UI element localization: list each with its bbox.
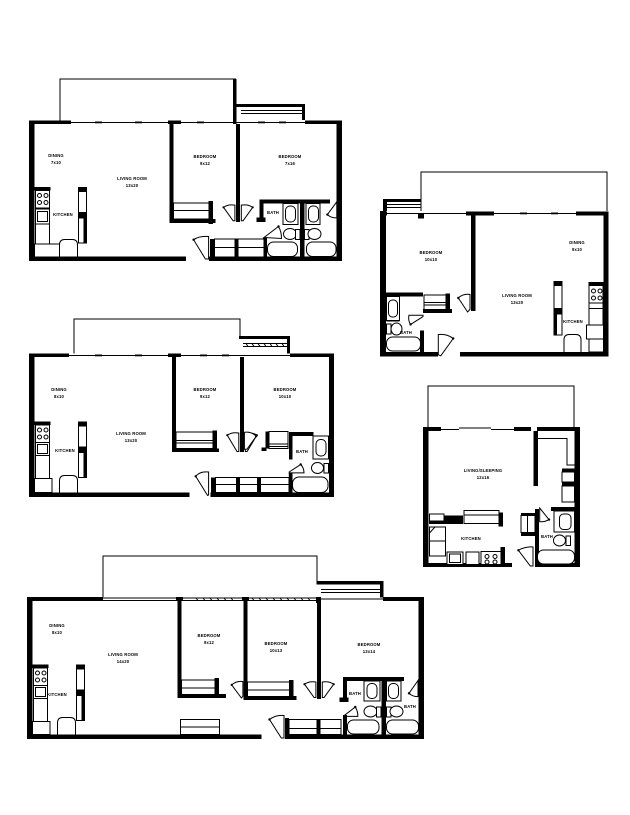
svg-text:9x12: 9x12 — [200, 161, 210, 166]
svg-text:13x20: 13x20 — [126, 183, 139, 188]
svg-text:BATH: BATH — [349, 691, 361, 696]
svg-text:KITCHEN: KITCHEN — [47, 692, 67, 697]
svg-text:LIVING ROOM: LIVING ROOM — [502, 293, 532, 298]
svg-text:BEDROOM: BEDROOM — [194, 387, 217, 392]
svg-text:BEDROOM: BEDROOM — [279, 154, 302, 159]
svg-text:8x10: 8x10 — [52, 630, 62, 635]
svg-text:13x20: 13x20 — [125, 438, 138, 443]
svg-text:BEDROOM: BEDROOM — [198, 633, 221, 638]
svg-text:KITCHEN: KITCHEN — [461, 536, 481, 541]
svg-text:LIVING ROOM: LIVING ROOM — [116, 431, 146, 436]
svg-text:7x10: 7x10 — [51, 160, 61, 165]
svg-text:KITCHEN: KITCHEN — [563, 319, 583, 324]
svg-text:BEDROOM: BEDROOM — [194, 154, 217, 159]
svg-text:BEDROOM: BEDROOM — [265, 641, 288, 646]
svg-text:8x10: 8x10 — [54, 394, 64, 399]
svg-text:DINING: DINING — [51, 387, 67, 392]
svg-text:DINING: DINING — [569, 240, 585, 245]
svg-text:14x20: 14x20 — [117, 659, 130, 664]
svg-text:BATH: BATH — [267, 210, 279, 215]
svg-text:LIVING ROOM: LIVING ROOM — [117, 176, 147, 181]
svg-text:9x10: 9x10 — [572, 247, 582, 252]
svg-text:12x16: 12x16 — [477, 475, 490, 480]
svg-text:DINING: DINING — [49, 623, 65, 628]
svg-text:LIVING ROOM: LIVING ROOM — [108, 652, 138, 657]
svg-text:BEDROOM: BEDROOM — [420, 250, 443, 255]
svg-text:BEDROOM: BEDROOM — [358, 642, 381, 647]
svg-text:10x10: 10x10 — [279, 394, 292, 399]
svg-text:BATH: BATH — [400, 330, 412, 335]
svg-text:13x20: 13x20 — [511, 300, 524, 305]
svg-text:10x10: 10x10 — [425, 257, 438, 262]
svg-text:13x14: 13x14 — [363, 649, 376, 654]
svg-text:BATH: BATH — [296, 449, 308, 454]
svg-text:10x13: 10x13 — [270, 648, 283, 653]
svg-text:KITCHEN: KITCHEN — [55, 448, 75, 453]
svg-text:7x16: 7x16 — [285, 161, 295, 166]
svg-text:KITCHEN: KITCHEN — [53, 212, 73, 217]
svg-text:LIVING/SLEEPING: LIVING/SLEEPING — [464, 468, 503, 473]
svg-text:9x12: 9x12 — [200, 394, 210, 399]
svg-text:BATH: BATH — [404, 704, 416, 709]
svg-text:9x12: 9x12 — [204, 640, 214, 645]
svg-text:BEDROOM: BEDROOM — [274, 387, 297, 392]
svg-text:DINING: DINING — [48, 153, 64, 158]
svg-text:BATH: BATH — [541, 534, 553, 539]
